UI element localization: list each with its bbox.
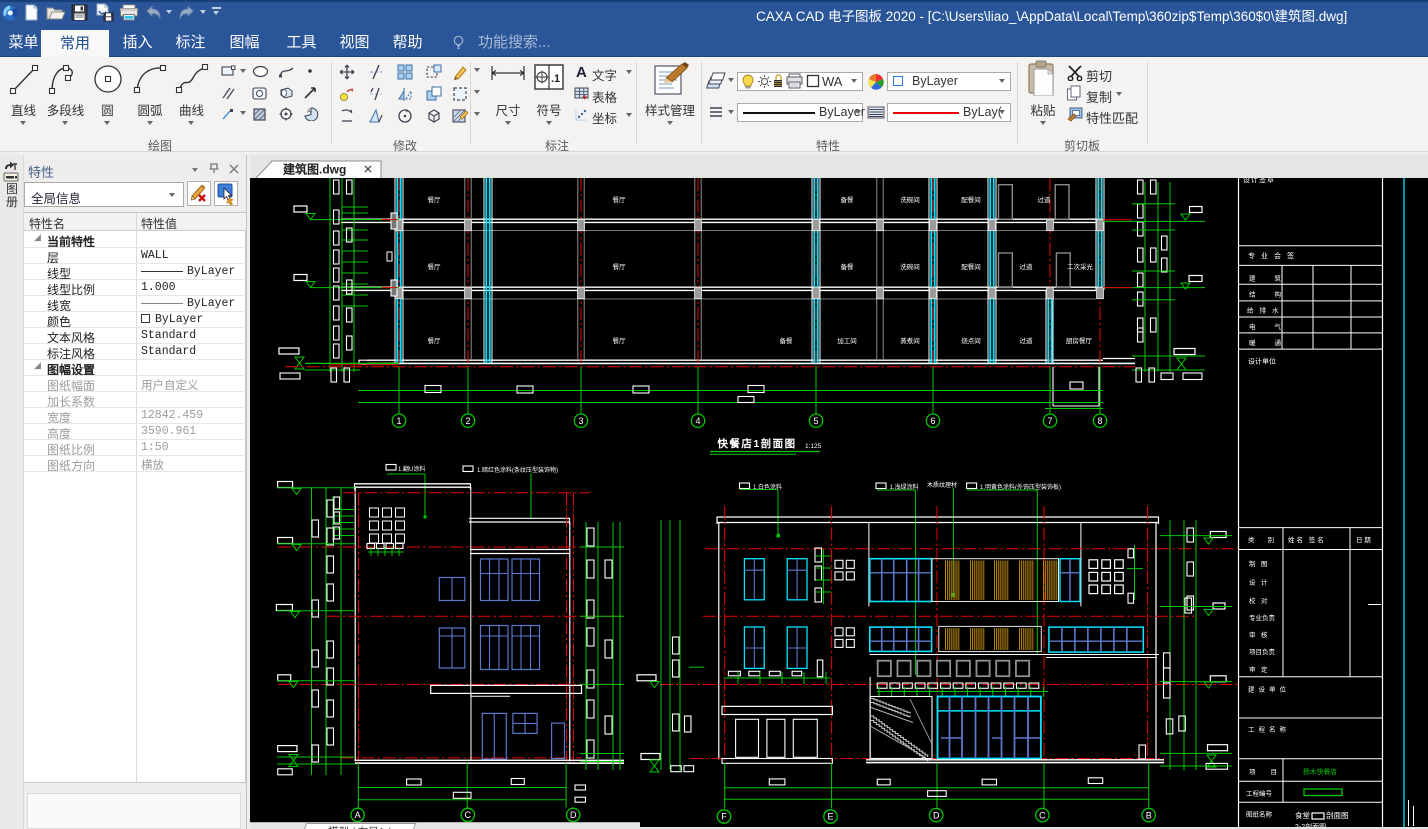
svg-text:建设单位: 建设单位 xyxy=(1248,685,1290,694)
svg-text:备餐: 备餐 xyxy=(841,195,855,204)
svg-text:餐厅: 餐厅 xyxy=(613,336,627,345)
svg-text:专业会签: 专业会签 xyxy=(1248,251,1300,260)
svg-text:备餐: 备餐 xyxy=(841,262,855,271)
svg-text:餐厅: 餐厅 xyxy=(428,195,442,204)
svg-text:结构: 结构 xyxy=(1249,290,1300,299)
svg-text:快餐店1剖面图: 快餐店1剖面图 xyxy=(716,437,796,450)
svg-text:蒸煮间: 蒸煮间 xyxy=(900,336,920,345)
svg-text:E: E xyxy=(827,812,833,822)
svg-text:制 图: 制 图 xyxy=(1249,559,1267,568)
svg-text:加工间: 加工间 xyxy=(837,336,857,345)
svg-text:姓名 签名: 姓名 签名 xyxy=(1288,535,1326,544)
svg-text:图纸名称: 图纸名称 xyxy=(1246,810,1273,819)
svg-text:剖面图: 剖面图 xyxy=(1326,810,1349,820)
svg-text:过道: 过道 xyxy=(1038,195,1052,204)
svg-text:餐厅: 餐厅 xyxy=(428,262,442,271)
svg-text:B: B xyxy=(1146,810,1152,820)
svg-text:.1: .1 xyxy=(551,73,560,85)
svg-text:烧点间: 烧点间 xyxy=(961,336,981,345)
svg-text:备餐: 备餐 xyxy=(780,336,794,345)
svg-text:校 对: 校 对 xyxy=(1249,596,1268,605)
svg-text:1.翻U涂料: 1.翻U涂料 xyxy=(398,465,425,473)
svg-text:1:125: 1:125 xyxy=(805,443,822,450)
svg-text:配餐间: 配餐间 xyxy=(961,262,981,271)
svg-text:C: C xyxy=(465,810,472,820)
svg-text:C: C xyxy=(1039,810,1046,820)
svg-text:D: D xyxy=(570,810,577,820)
svg-text:A: A xyxy=(355,810,361,820)
svg-text:厨房餐厅: 厨房餐厅 xyxy=(1066,336,1093,345)
svg-text:洗碗间: 洗碗间 xyxy=(900,195,920,204)
svg-text:7: 7 xyxy=(1047,416,1052,426)
svg-text:D: D xyxy=(933,810,940,820)
svg-text:木质纹理材: 木质纹理材 xyxy=(927,481,957,489)
svg-text:审 定: 审 定 xyxy=(1249,665,1268,674)
svg-text:杨木快餐店: 杨木快餐店 xyxy=(1303,767,1337,776)
svg-text:建筑: 建筑 xyxy=(1249,274,1300,283)
svg-text:1.暗红色涂料(条纹压型装饰物): 1.暗红色涂料(条纹压型装饰物) xyxy=(477,466,558,474)
svg-text:3: 3 xyxy=(578,416,583,426)
svg-text:6: 6 xyxy=(930,416,935,426)
svg-text:电气: 电气 xyxy=(1249,322,1300,331)
svg-text:过道: 过道 xyxy=(1020,262,1034,271)
svg-text:F: F xyxy=(721,812,727,822)
svg-text:设 计: 设 计 xyxy=(1249,578,1268,587)
svg-text:过道: 过道 xyxy=(1020,336,1034,345)
svg-text:餐厅: 餐厅 xyxy=(613,195,627,204)
svg-text:8: 8 xyxy=(1097,416,1102,426)
svg-text:建筑图.dwg: 建筑图.dwg xyxy=(282,162,346,177)
svg-text:给排水: 给排水 xyxy=(1247,306,1285,315)
svg-text:工程名称: 工程名称 xyxy=(1248,725,1290,734)
svg-text:+: + xyxy=(582,92,587,100)
svg-text:洗碗间: 洗碗间 xyxy=(900,262,920,271)
svg-text:设计签章: 设计签章 xyxy=(1243,178,1275,184)
svg-text:审 核: 审 核 xyxy=(1249,630,1268,639)
svg-text:项目负责: 项目负责 xyxy=(1249,647,1276,656)
svg-text:1: 1 xyxy=(396,416,401,426)
svg-text:工程编号: 工程编号 xyxy=(1246,789,1273,798)
svg-text:类别: 类别 xyxy=(1248,535,1287,544)
svg-text:食堂: 食堂 xyxy=(1295,810,1311,820)
svg-text:配餐间: 配餐间 xyxy=(961,195,981,204)
svg-text:设计单位: 设计单位 xyxy=(1248,357,1276,366)
svg-text:日 期: 日 期 xyxy=(1356,536,1371,544)
svg-text:专业负责: 专业负责 xyxy=(1249,613,1276,622)
svg-text:暖通: 暖通 xyxy=(1249,338,1300,347)
svg-text:4: 4 xyxy=(695,416,700,426)
svg-text:餐厅: 餐厅 xyxy=(428,336,442,345)
svg-text:餐厅: 餐厅 xyxy=(613,262,627,271)
svg-text:2: 2 xyxy=(465,416,470,426)
svg-text:5: 5 xyxy=(813,416,818,426)
svg-text:A: A xyxy=(307,109,311,115)
svg-text:项目: 项目 xyxy=(1249,768,1292,776)
svg-text:二次采光: 二次采光 xyxy=(1067,262,1094,271)
